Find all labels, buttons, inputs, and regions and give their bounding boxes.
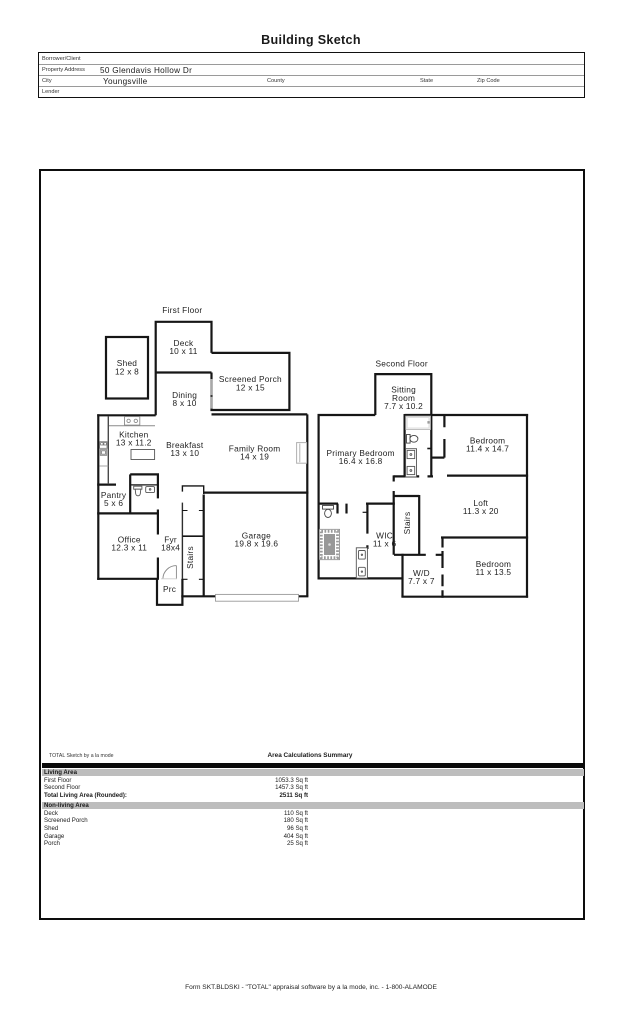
svg-text:Stairs: Stairs [185,546,195,569]
svg-text:Prc: Prc [163,584,176,594]
svg-text:8 x 10: 8 x 10 [173,398,197,408]
svg-text:19.8 x 19.6: 19.8 x 19.6 [234,539,278,549]
svg-text:12.3 x 11: 12.3 x 11 [111,543,147,553]
svg-text:Stairs: Stairs [402,512,412,535]
svg-text:11 x 6: 11 x 6 [373,539,397,549]
svg-text:14 x 19: 14 x 19 [240,452,269,462]
svg-text:5 x 6: 5 x 6 [104,498,123,508]
svg-text:16.4 x 16.8: 16.4 x 16.8 [339,456,383,466]
svg-text:12 x 8: 12 x 8 [115,366,139,376]
svg-text:7.7 x 10.2: 7.7 x 10.2 [384,401,423,411]
svg-text:13 x 11.2: 13 x 11.2 [116,438,152,448]
svg-text:Second Floor: Second Floor [376,359,428,369]
svg-text:11.4 x 14.7: 11.4 x 14.7 [466,444,509,454]
svg-text:11 x 13.5: 11 x 13.5 [476,567,512,577]
svg-text:10 x 11: 10 x 11 [169,346,197,356]
svg-text:First Floor: First Floor [162,305,202,315]
svg-text:12 x 15: 12 x 15 [236,382,265,392]
svg-text:13 x 10: 13 x 10 [170,448,199,458]
svg-text:11.3 x 20: 11.3 x 20 [463,506,499,516]
svg-text:18x4: 18x4 [161,543,180,553]
svg-text:7.7 x 7: 7.7 x 7 [408,576,435,586]
